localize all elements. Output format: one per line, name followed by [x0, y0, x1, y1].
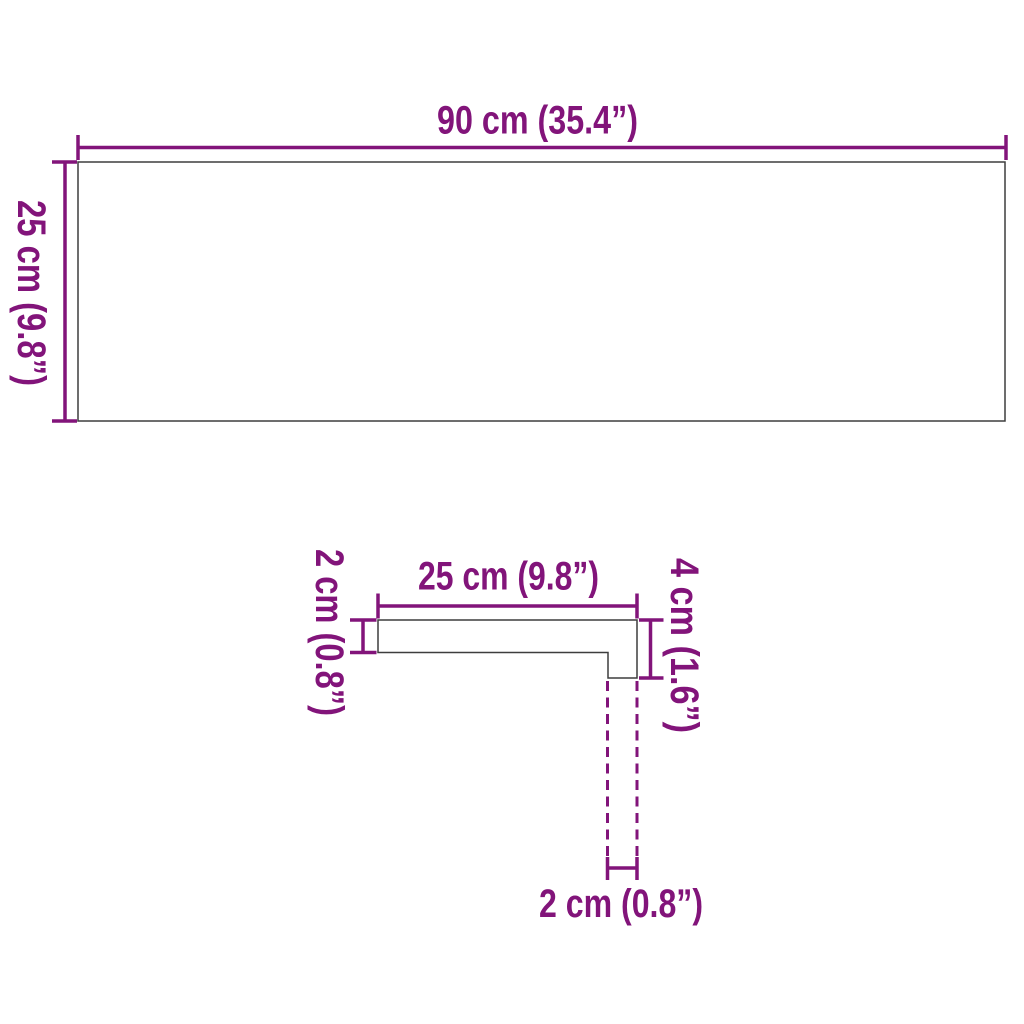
svg-text:25 cm (9.8”): 25 cm (9.8”)	[9, 200, 53, 386]
svg-text:90 cm (35.4”): 90 cm (35.4”)	[437, 99, 638, 143]
svg-text:2 cm (0.8”): 2 cm (0.8”)	[539, 882, 703, 926]
svg-text:2 cm (0.8”): 2 cm (0.8”)	[307, 549, 351, 716]
svg-text:25 cm (9.8”): 25 cm (9.8”)	[418, 555, 599, 599]
svg-text:4 cm (1.6”): 4 cm (1.6”)	[662, 558, 706, 733]
